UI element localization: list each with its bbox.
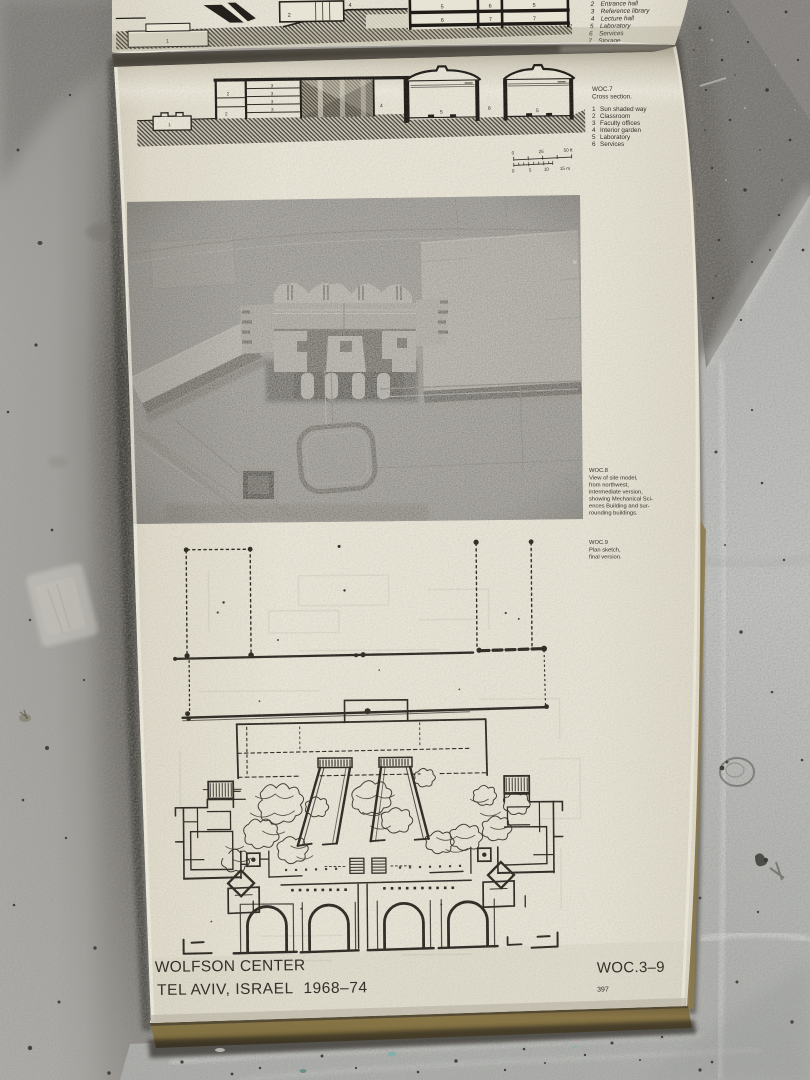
svg-text:6: 6 <box>441 18 444 24</box>
svg-text:5: 5 <box>441 4 444 10</box>
svg-text:7: 7 <box>533 16 536 22</box>
svg-text:4: 4 <box>591 16 595 23</box>
svg-text:4: 4 <box>349 3 352 9</box>
svg-text:Reference library: Reference library <box>601 7 651 15</box>
svg-text:2: 2 <box>288 13 291 19</box>
svg-text:2: 2 <box>590 1 595 8</box>
svg-text:5: 5 <box>533 3 536 9</box>
svg-text:7: 7 <box>489 17 492 23</box>
svg-text:Entrance hall: Entrance hall <box>601 0 639 8</box>
svg-text:3: 3 <box>591 8 595 15</box>
svg-text:6: 6 <box>489 4 492 10</box>
svg-text:Lecture hall: Lecture hall <box>601 15 635 23</box>
